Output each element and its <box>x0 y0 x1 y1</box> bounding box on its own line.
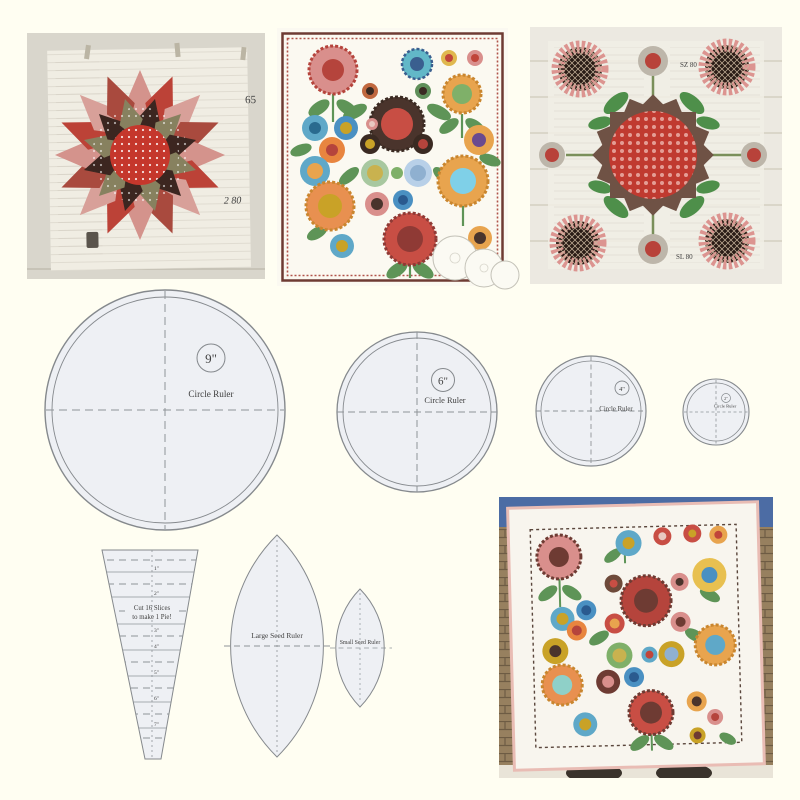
circle-ruler-2in: 2" Circle Ruler <box>682 378 750 446</box>
hanging-quilt <box>508 502 765 770</box>
wedge-instruction-line2: to make 1 Pie! <box>132 614 171 621</box>
dresden-block-photo: 65 2 80 <box>27 33 265 279</box>
medallion-quilt-photo: SZ 80 SL 80 <box>530 27 782 284</box>
large-seed-label: Large Seed Ruler <box>251 631 303 640</box>
size-badge-2: 2" <box>724 396 728 401</box>
dresden-flower <box>55 70 225 240</box>
medallion-quilt-art: SZ 80 SL 80 <box>530 27 782 284</box>
svg-text:2": 2" <box>154 591 159 597</box>
circle-ruler-9in: 9" Circle Ruler <box>42 287 288 533</box>
small-seed-label: Small Seed Ruler <box>340 640 381 646</box>
wedge-template: 1" 2" 3" 4" 5" 6" 7" Cut 16 Slices to ma… <box>95 540 210 765</box>
circle-ruler-label-9: Circle Ruler <box>188 389 233 399</box>
svg-text:6": 6" <box>154 696 159 702</box>
svg-text:7": 7" <box>154 722 159 728</box>
circle-ruler-6in: 6" Circle Ruler <box>334 329 500 495</box>
small-seed-ruler: Small Seed Ruler <box>333 586 389 710</box>
svg-text:4": 4" <box>154 644 159 650</box>
flower-garden-quilt-photo <box>277 28 508 286</box>
hanging-quilt-art <box>499 497 773 778</box>
dresden-block-art: 65 2 80 <box>27 33 265 279</box>
size-badge-4: 4" <box>619 386 625 393</box>
svg-text:1": 1" <box>154 566 159 572</box>
circle-ruler-label-4: Circle Ruler <box>599 406 633 413</box>
size-badge-6: 6" <box>438 376 448 388</box>
product-collage: 65 2 80 <box>0 0 800 800</box>
paper-mark-sz80: SZ 80 <box>680 61 697 69</box>
size-badge-9: 9" <box>205 351 217 366</box>
circle-ruler-4in: 4" Circle Ruler <box>534 354 648 468</box>
hanging-quilt-photo <box>499 497 773 778</box>
circle-ruler-label-2: Circle Ruler <box>714 404 737 409</box>
flower-garden-quilt-art <box>277 28 508 286</box>
large-seed-ruler: Large Seed Ruler <box>228 532 328 760</box>
paper-mark-sl80: SL 80 <box>676 253 693 261</box>
paper-mark-280: 2 80 <box>224 195 242 206</box>
svg-text:5": 5" <box>154 670 159 676</box>
circle-ruler-label-6: Circle Ruler <box>424 396 465 405</box>
svg-text:3": 3" <box>154 628 159 634</box>
centre-medallion <box>592 94 714 216</box>
wedge-instruction-line1: Cut 16 Slices <box>134 605 171 612</box>
paper-mark-65: 65 <box>245 94 257 106</box>
